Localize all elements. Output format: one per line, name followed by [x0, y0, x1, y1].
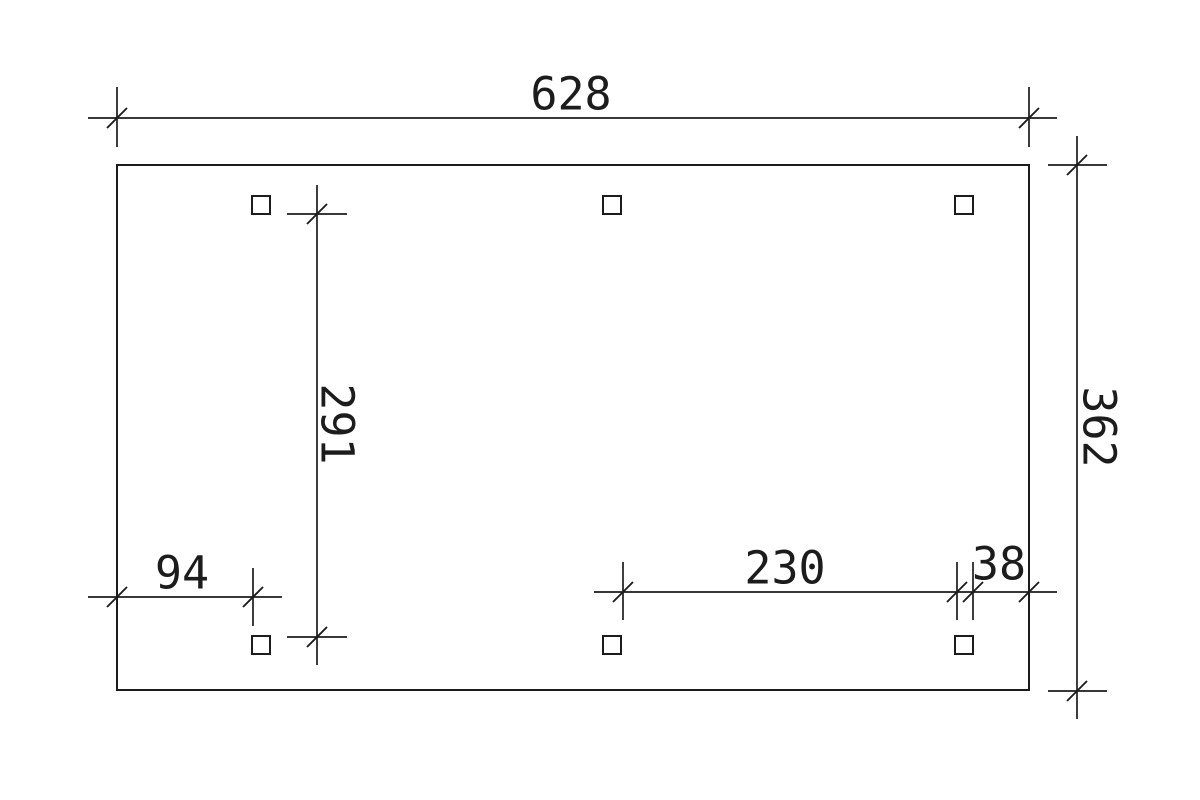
dim-label-inner-vertical: 291: [315, 383, 360, 464]
dim-label-bottom-left: 94: [155, 551, 209, 596]
dim-label-bottom-right: 38: [972, 542, 1026, 587]
dimension-lines: [88, 118, 1077, 719]
technical-drawing-canvas: 628 362 291 94 230 38: [0, 0, 1200, 800]
post-square-top-middle: [603, 196, 621, 214]
dim-label-top-width: 628: [530, 72, 611, 117]
dim-label-right-height: 362: [1077, 386, 1122, 467]
post-square-top-left: [252, 196, 270, 214]
dim-label-bottom-center: 230: [744, 546, 825, 591]
post-square-top-right: [955, 196, 973, 214]
post-square-bottom-right: [955, 636, 973, 654]
extension-lines: [117, 87, 1107, 691]
post-square-bottom-left: [252, 636, 270, 654]
post-square-bottom-middle: [603, 636, 621, 654]
